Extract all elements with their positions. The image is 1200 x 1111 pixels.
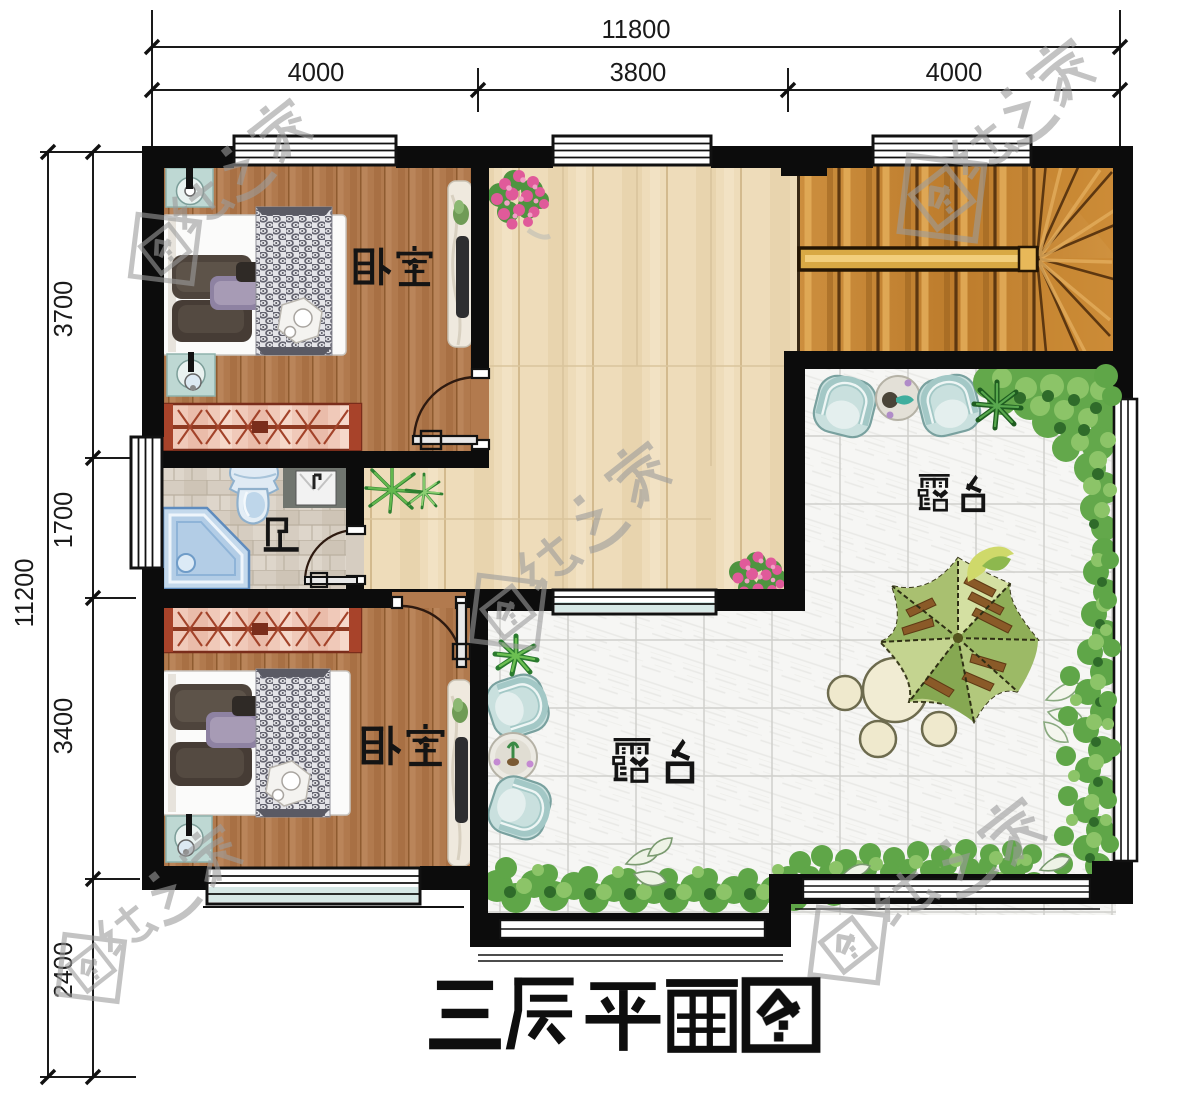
svg-text:4000: 4000: [288, 59, 345, 87]
svg-text:11200: 11200: [11, 558, 39, 627]
svg-text:4000: 4000: [926, 59, 983, 87]
svg-text:11800: 11800: [601, 16, 670, 44]
svg-text:3800: 3800: [610, 59, 667, 87]
svg-text:1700: 1700: [50, 492, 78, 549]
svg-text:3700: 3700: [50, 281, 78, 338]
svg-text:3400: 3400: [50, 698, 78, 755]
